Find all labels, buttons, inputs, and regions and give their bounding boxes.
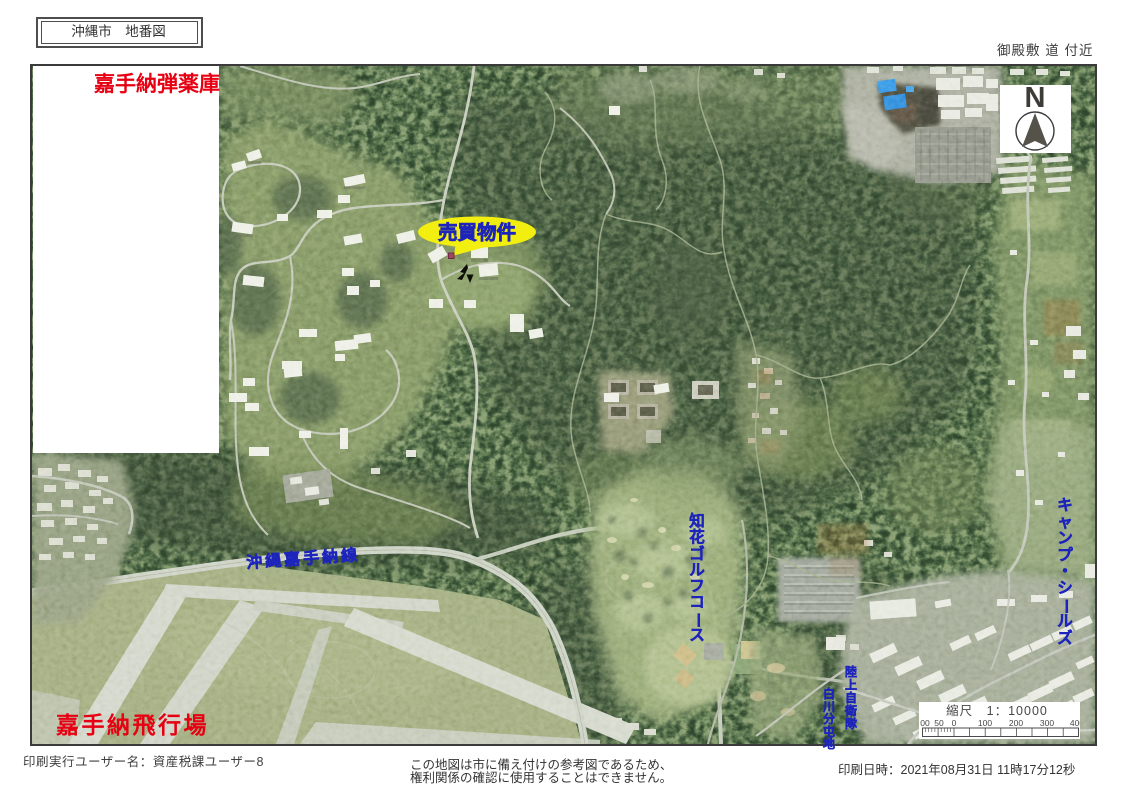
svg-text:200: 200 — [1009, 718, 1023, 728]
svg-text:00: 00 — [920, 718, 930, 728]
svg-text:100: 100 — [978, 718, 992, 728]
svg-text:売買物件: 売買物件 — [438, 221, 516, 244]
svg-text:400: 400 — [1070, 718, 1080, 728]
svg-text:縮尺 1：10000: 縮尺 1：10000 — [946, 703, 1048, 718]
svg-text:300: 300 — [1040, 718, 1054, 728]
svg-text:N: N — [1025, 85, 1046, 114]
svg-text:50: 50 — [934, 718, 944, 728]
svg-text:0: 0 — [952, 718, 957, 728]
